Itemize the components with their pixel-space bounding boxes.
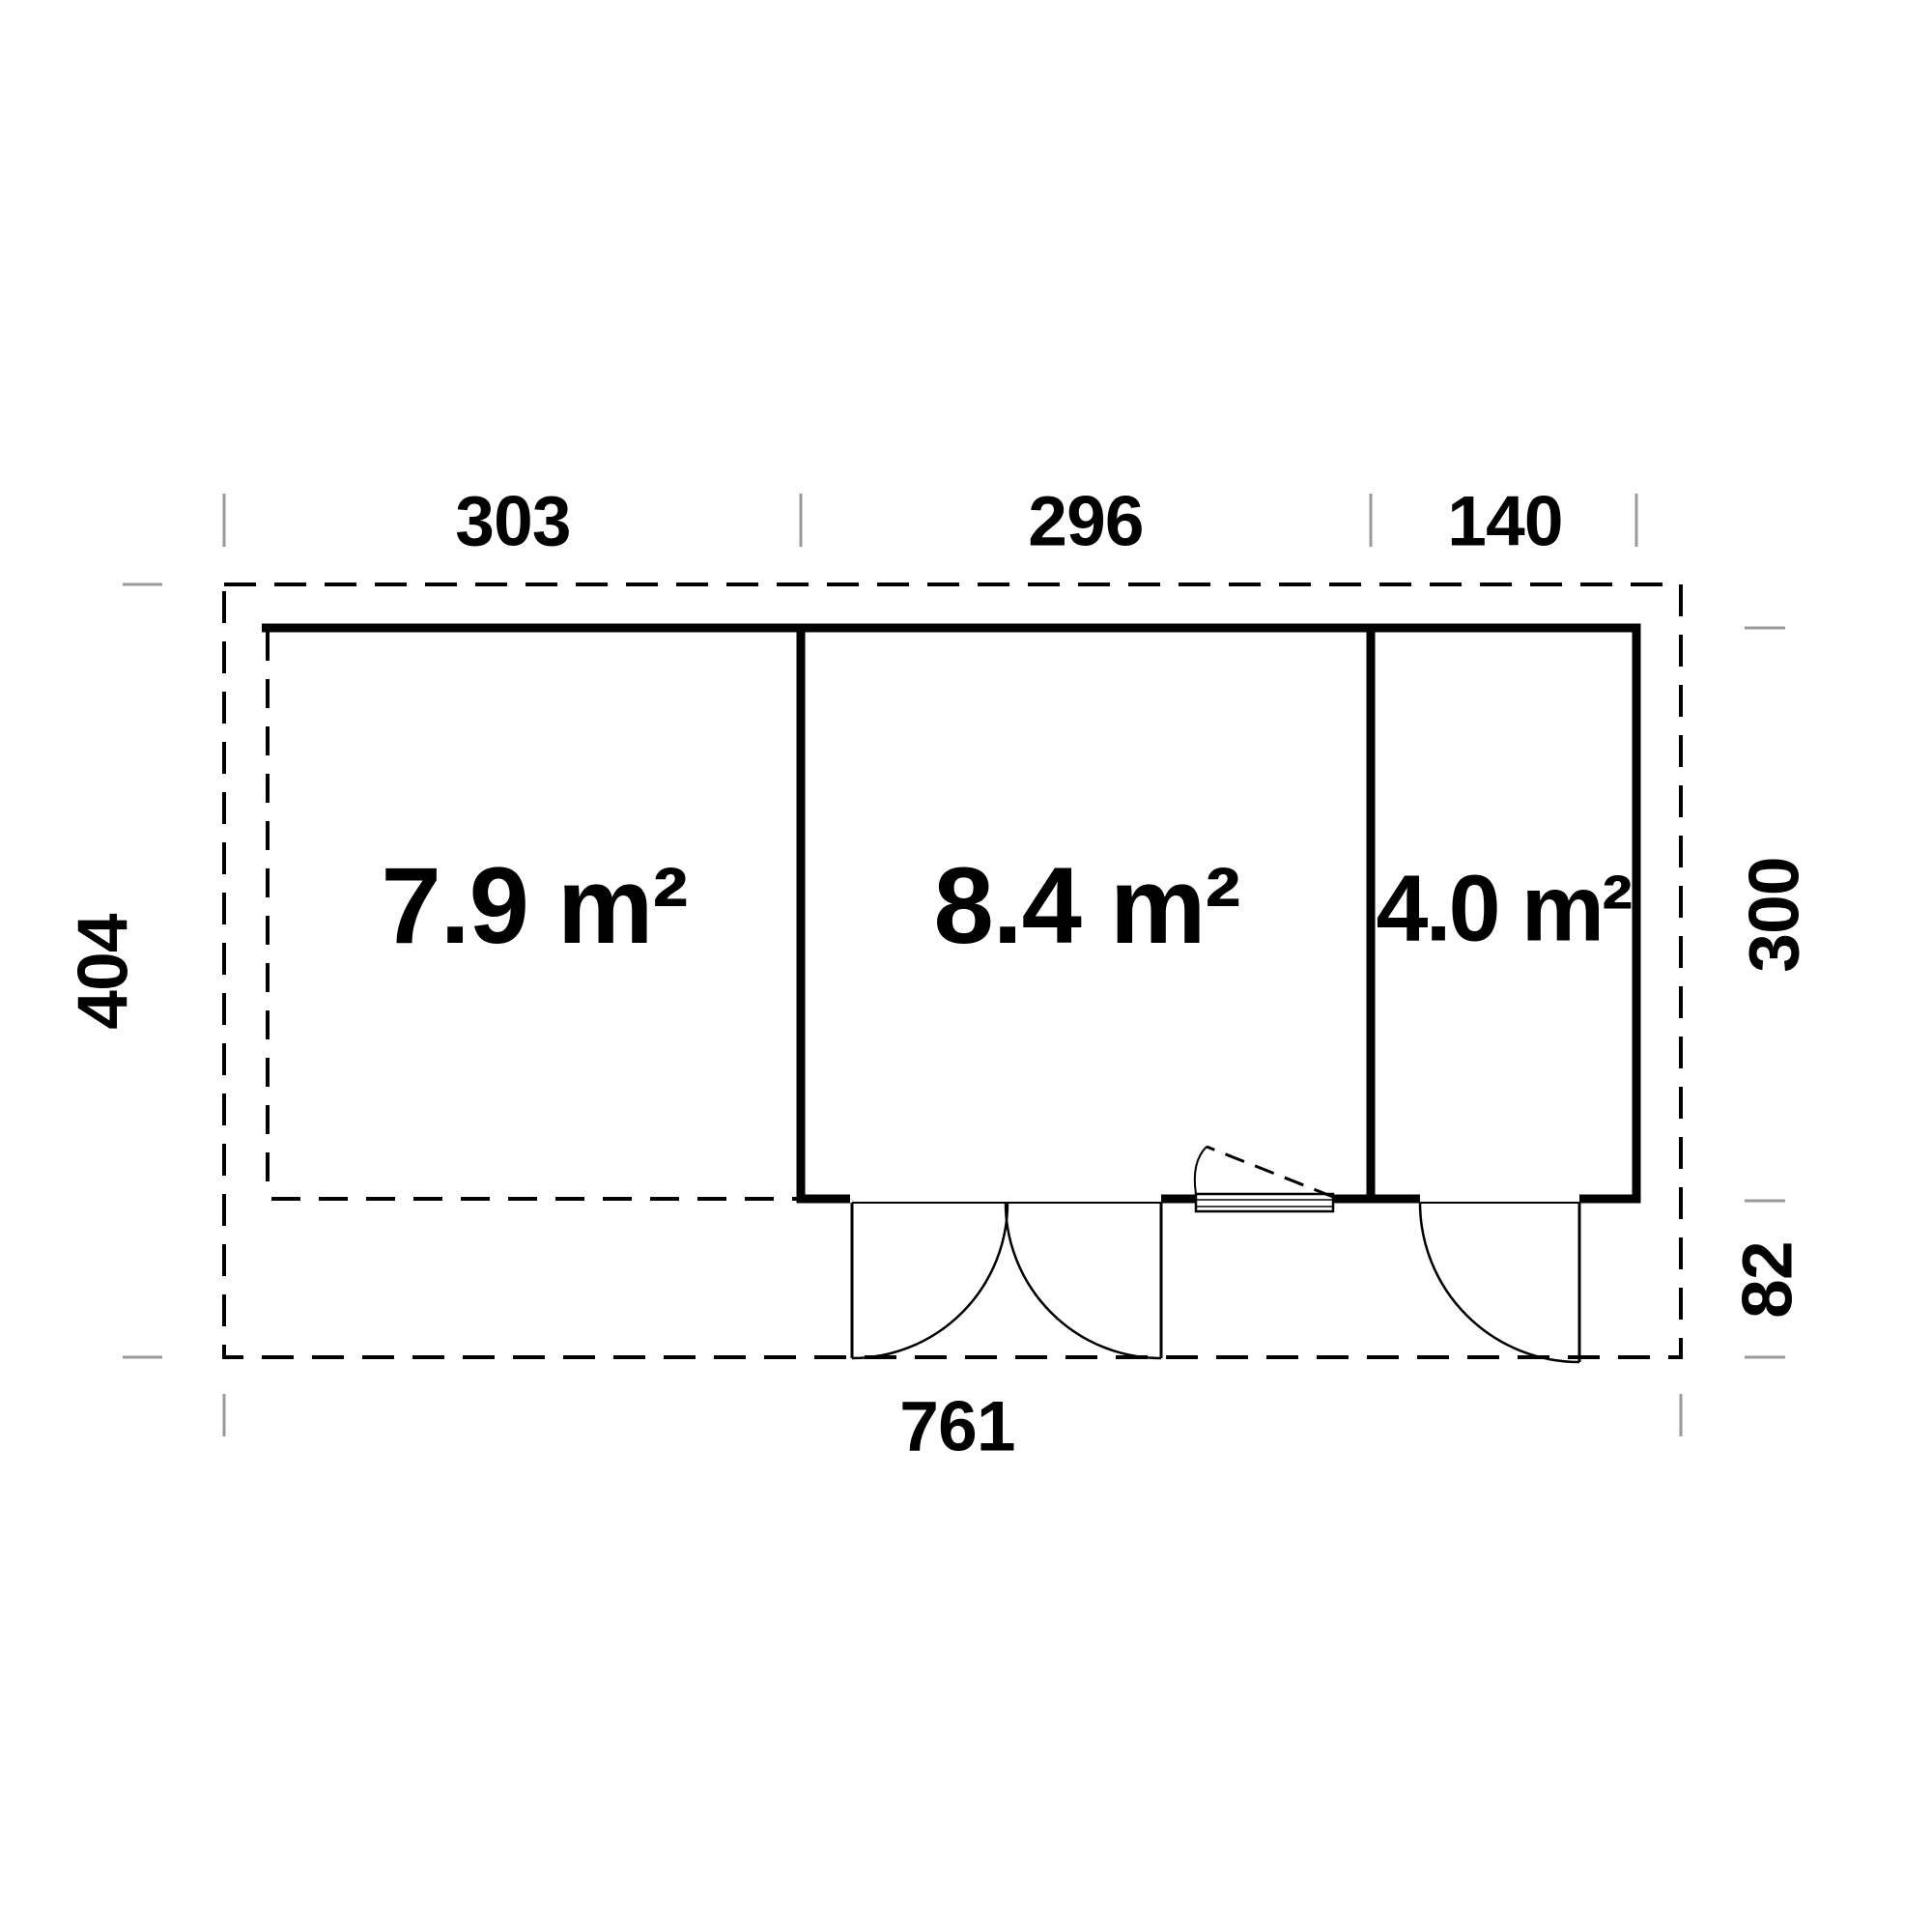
- single-door: [1420, 1203, 1579, 1362]
- dim-label-top-right: 140: [1447, 487, 1563, 557]
- double-door: [852, 1203, 1161, 1358]
- room-area-label-right: 4.0 m²: [1377, 862, 1631, 955]
- dim-label-left-total: 404: [69, 914, 139, 1030]
- tilt-window: [1195, 1147, 1333, 1211]
- roof-outline-rect: [224, 584, 1681, 1357]
- dim-label-right-main: 300: [1740, 857, 1810, 973]
- window-sill: [1196, 1194, 1333, 1211]
- dim-label-top-middle: 296: [1028, 487, 1144, 557]
- floor-plan-page: 303 296 140 761 404 300 82 7.9 m² 8.4 m²…: [0, 0, 1932, 1932]
- single-door-swing-arc: [1420, 1203, 1579, 1362]
- room-area-label-middle: 8.4 m²: [934, 852, 1240, 960]
- window-sash-open-dashed: [1207, 1147, 1333, 1197]
- floor-plan-drawing: [0, 0, 1932, 1932]
- double-door-right-swing-arc: [1006, 1203, 1161, 1358]
- double-door-left-swing-arc: [852, 1203, 1008, 1358]
- room-area-label-left: 7.9 m²: [382, 852, 688, 960]
- dim-label-top-left: 303: [455, 487, 571, 557]
- roof-outline: [224, 584, 1681, 1357]
- dim-label-right-front: 82: [1733, 1241, 1804, 1319]
- dim-label-bottom-total: 761: [899, 1392, 1015, 1463]
- window-swing-arc: [1195, 1147, 1207, 1194]
